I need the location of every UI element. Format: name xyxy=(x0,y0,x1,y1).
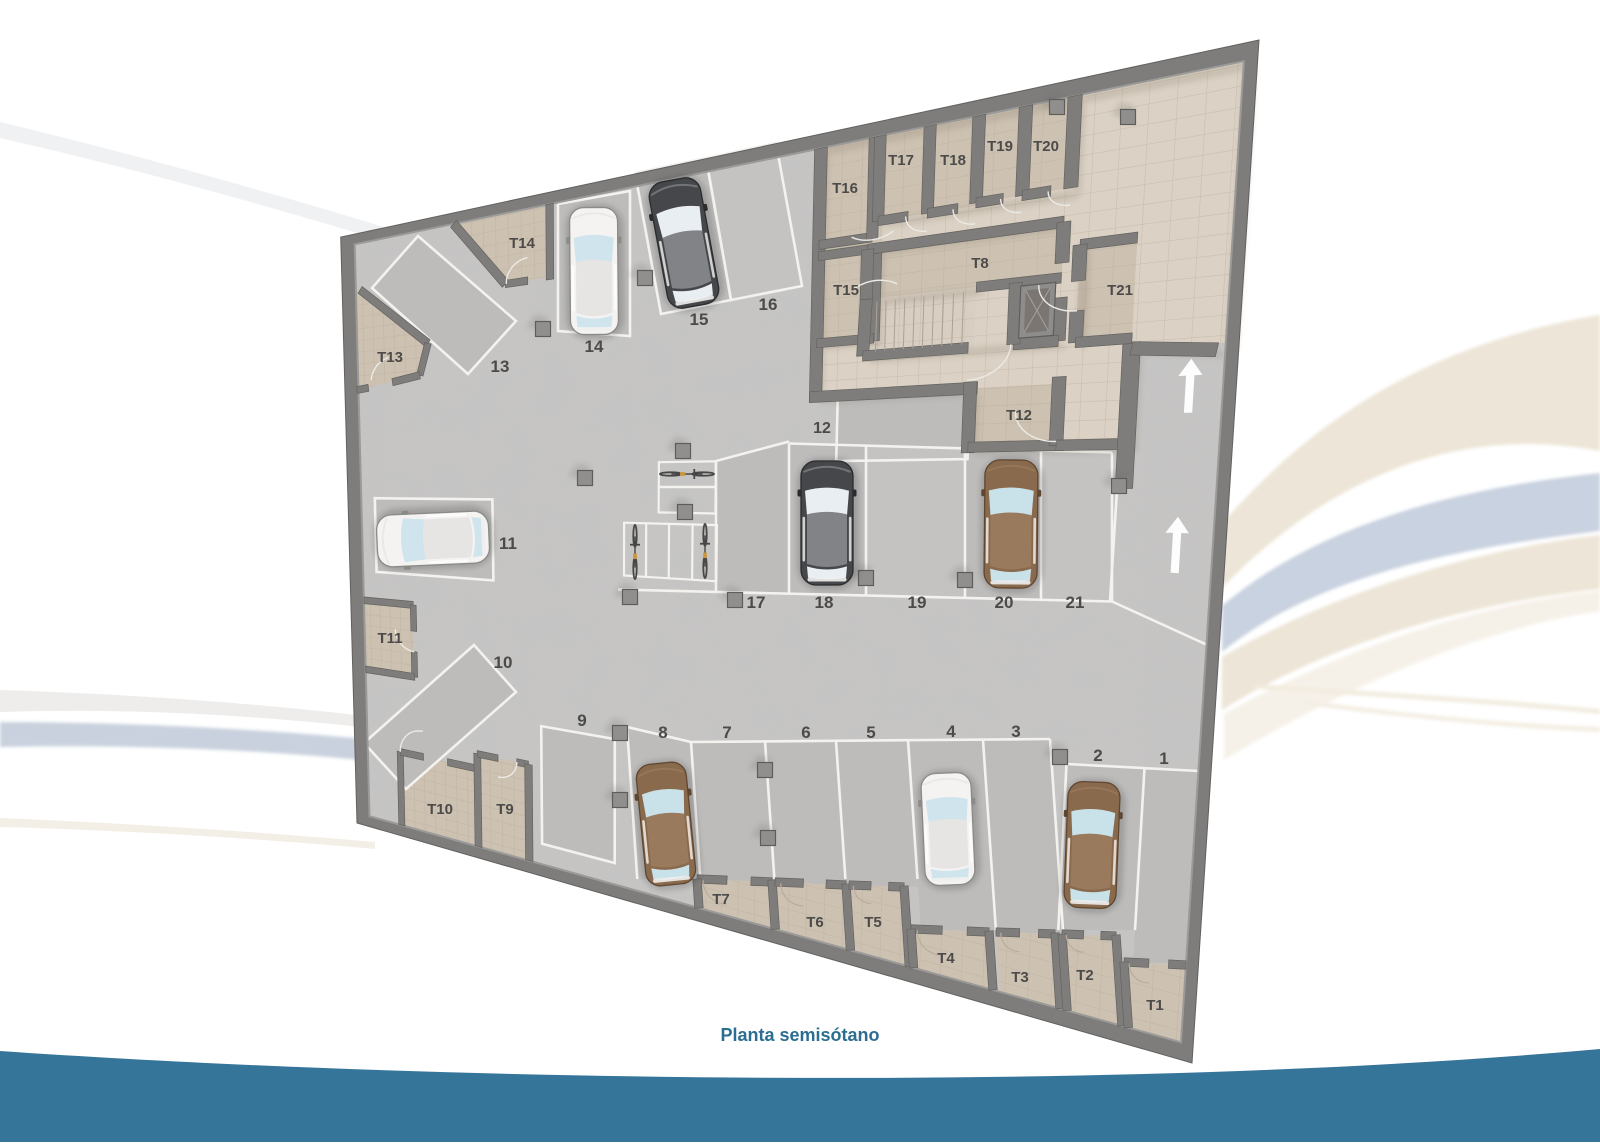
svg-text:T8: T8 xyxy=(971,255,989,272)
svg-text:T10: T10 xyxy=(427,801,453,818)
svg-text:T19: T19 xyxy=(987,138,1013,155)
svg-text:Planta semisótano: Planta semisótano xyxy=(720,1025,879,1045)
svg-text:12: 12 xyxy=(813,420,831,437)
svg-text:13: 13 xyxy=(491,357,510,376)
svg-text:11: 11 xyxy=(499,534,517,553)
svg-text:2: 2 xyxy=(1093,746,1102,765)
svg-text:T5: T5 xyxy=(864,914,882,931)
svg-text:18: 18 xyxy=(815,593,834,612)
svg-text:T17: T17 xyxy=(888,152,914,169)
svg-text:T14: T14 xyxy=(509,235,536,252)
svg-text:10: 10 xyxy=(494,653,513,672)
svg-text:5: 5 xyxy=(866,723,875,742)
svg-text:6: 6 xyxy=(801,723,810,742)
svg-text:17: 17 xyxy=(747,593,766,612)
svg-text:T21: T21 xyxy=(1107,282,1133,299)
svg-text:3: 3 xyxy=(1011,722,1020,741)
svg-text:4: 4 xyxy=(946,722,956,741)
svg-text:T18: T18 xyxy=(940,152,966,169)
svg-text:14: 14 xyxy=(585,337,604,356)
svg-text:8: 8 xyxy=(658,723,667,742)
svg-text:7: 7 xyxy=(722,723,731,742)
svg-text:20: 20 xyxy=(995,593,1014,612)
svg-text:T4: T4 xyxy=(937,950,955,967)
svg-text:T1: T1 xyxy=(1146,997,1164,1014)
svg-text:T9: T9 xyxy=(496,801,514,818)
svg-text:T2: T2 xyxy=(1076,967,1094,984)
svg-text:T7: T7 xyxy=(712,891,730,908)
svg-text:16: 16 xyxy=(759,295,778,314)
svg-text:1: 1 xyxy=(1159,749,1168,768)
svg-text:21: 21 xyxy=(1066,593,1085,612)
svg-text:15: 15 xyxy=(690,310,709,329)
svg-text:T20: T20 xyxy=(1033,138,1059,155)
svg-text:T6: T6 xyxy=(806,914,824,931)
svg-text:T15: T15 xyxy=(833,282,859,299)
svg-text:19: 19 xyxy=(908,593,927,612)
svg-text:T3: T3 xyxy=(1011,969,1029,986)
svg-text:T11: T11 xyxy=(377,630,402,647)
svg-text:T16: T16 xyxy=(832,180,858,197)
svg-text:T13: T13 xyxy=(377,349,403,366)
svg-text:9: 9 xyxy=(577,711,586,730)
svg-text:T12: T12 xyxy=(1006,407,1032,424)
